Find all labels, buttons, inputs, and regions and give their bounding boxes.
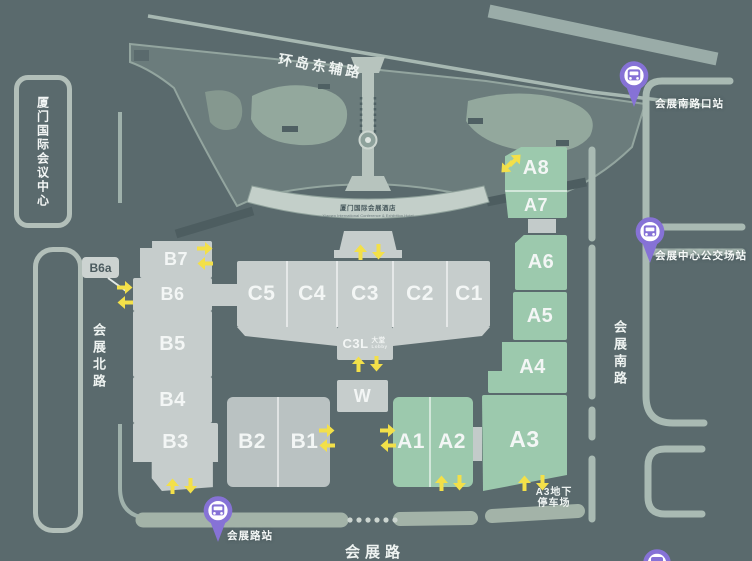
hall-c3l-label: C3L [342,336,368,351]
hall-b7[interactable]: B7 [140,241,212,278]
west-loop-road [33,247,83,533]
hotel-label: 厦门国际会展酒店 Xiamen International Conference… [310,205,426,219]
hall-w-label: W [354,386,372,407]
hall-a1-label: A1 [397,430,425,454]
map-title-box: 厦门国际会议中心 [14,75,72,228]
hall-c1[interactable]: C1 [448,261,490,327]
hall-c1-label: C1 [455,282,483,306]
road-east-text: 会展南路 [612,320,627,388]
hall-a1-a2-block: A1 A2 [393,397,473,487]
hall-b2[interactable]: B2 [227,397,277,487]
hall-c3l-lobby[interactable]: C3L 大堂 Lobby [337,327,393,360]
hall-a6-label: A6 [528,251,555,274]
hall-b3-label: B3 [162,431,189,454]
hall-a5[interactable]: A5 [513,292,567,340]
bus-pin-icon [641,547,673,561]
parking-label: A3地下 停车场 [516,487,592,509]
exhibition-center-map: B7 B6 B5 B4 B3 B2 B1 C5 C4 C3 C2 C1 [0,0,752,561]
road-west-text: 会展北路 [91,323,106,391]
hotel-name: 厦门国际会展酒店 [310,205,426,213]
bus-stop-south-label: 会展路站 [227,528,273,543]
hall-b3[interactable]: B3 [133,423,218,492]
hall-a1[interactable]: A1 [393,397,429,487]
road-top-text: 环岛东辅路 [277,51,363,81]
east-road-shapes [592,81,742,519]
hall-b6a-callout[interactable]: B6a [82,257,119,278]
hall-b5[interactable]: B5 [133,311,212,377]
hall-b7-label: B7 [164,249,188,270]
hall-a7[interactable]: A7 [505,192,567,218]
hall-w[interactable]: W [337,380,388,412]
hall-b6-label: B6 [160,284,184,305]
parking-line1: A3地下 [516,487,592,498]
bus-stop-terminal-label: 会展中心公交场站 [655,248,747,263]
hall-a6[interactable]: A6 [515,235,567,290]
hall-a5-label: A5 [527,305,554,328]
hall-c3[interactable]: C3 [338,261,392,327]
bus-stop-south[interactable]: 会展路站 [201,495,235,550]
hall-b1-label: B1 [291,430,319,454]
road-label-south: 会展路 [345,541,405,561]
hall-a7-label: A7 [524,195,548,216]
hall-b4-label: B4 [159,389,186,412]
hall-b6a-label: B6a [89,261,111,275]
parking-line2: 停车场 [516,498,592,509]
hall-b1[interactable]: B1 [279,397,330,487]
hall-a8-a7-block: A8 A7 [505,147,567,218]
map-title: 厦门国际会议中心 [35,96,52,208]
road-label-east: 会展南路 [610,320,629,388]
hall-b6[interactable]: B6 [133,278,212,311]
hall-a4-label: A4 [519,356,546,379]
hall-a2[interactable]: A2 [431,397,473,487]
lobby-en-label: Lobby [372,345,388,350]
hall-a3-label: A3 [509,426,539,453]
hall-c4[interactable]: C4 [288,261,336,327]
b6a-leader-line [108,278,126,291]
hall-a3[interactable]: A3 [482,395,567,493]
bus-stop-partial [641,547,673,561]
hall-c-row: C5 C4 C3 C2 C1 [237,261,490,327]
bus-stop-south-gate-label: 会展南路口站 [655,96,724,111]
hall-a8-label: A8 [523,157,550,180]
hall-c2[interactable]: C2 [394,261,446,327]
hall-b5-label: B5 [159,333,186,356]
bus-stop-terminal[interactable]: 会展中心公交场站 [633,216,667,271]
hall-c5-label: C5 [248,282,276,306]
hall-b2-b1-block: B2 B1 [227,397,330,487]
road-south-text: 会展路 [345,544,405,561]
road-label-top: 环岛东辅路 [277,49,364,83]
bus-pin-icon [617,60,651,110]
road-label-west: 会展北路 [89,323,108,391]
hall-c3l-sublabel: 大堂 Lobby [372,338,388,349]
hall-c4-label: C4 [298,282,326,306]
hall-c2-label: C2 [406,282,434,306]
hall-c3-label: C3 [351,282,379,306]
hall-a8[interactable]: A8 [505,147,567,190]
hotel-name-en: Xiamen International Conference & Exhibi… [310,213,426,218]
hall-c5[interactable]: C5 [237,261,286,327]
hall-b4[interactable]: B4 [133,377,212,423]
hall-a4[interactable]: A4 [488,342,567,393]
hall-a2-label: A2 [438,430,466,454]
bus-stop-south-gate[interactable]: 会展南路口站 [617,60,651,115]
hall-b2-label: B2 [238,430,266,454]
